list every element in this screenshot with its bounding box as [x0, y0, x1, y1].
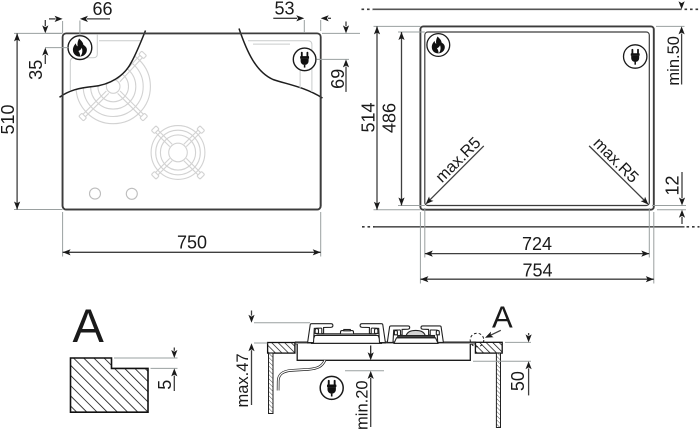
svg-text:5: 5 [155, 380, 175, 390]
svg-text:min.50: min.50 [665, 36, 683, 86]
svg-text:486: 486 [379, 103, 399, 133]
svg-text:A: A [492, 300, 513, 335]
svg-text:69: 69 [328, 69, 348, 89]
svg-text:35: 35 [26, 60, 46, 80]
svg-text:514: 514 [358, 102, 378, 132]
svg-text:50: 50 [508, 371, 528, 391]
svg-text:724: 724 [522, 234, 552, 254]
svg-text:66: 66 [92, 0, 112, 19]
svg-text:max.47: max.47 [234, 353, 252, 407]
svg-text:A: A [73, 299, 105, 352]
svg-text:750: 750 [177, 233, 207, 253]
svg-text:510: 510 [0, 104, 18, 134]
svg-text:12: 12 [662, 175, 682, 195]
svg-text:754: 754 [522, 261, 552, 281]
svg-text:53: 53 [274, 0, 294, 18]
svg-text:min.20: min.20 [353, 380, 371, 430]
